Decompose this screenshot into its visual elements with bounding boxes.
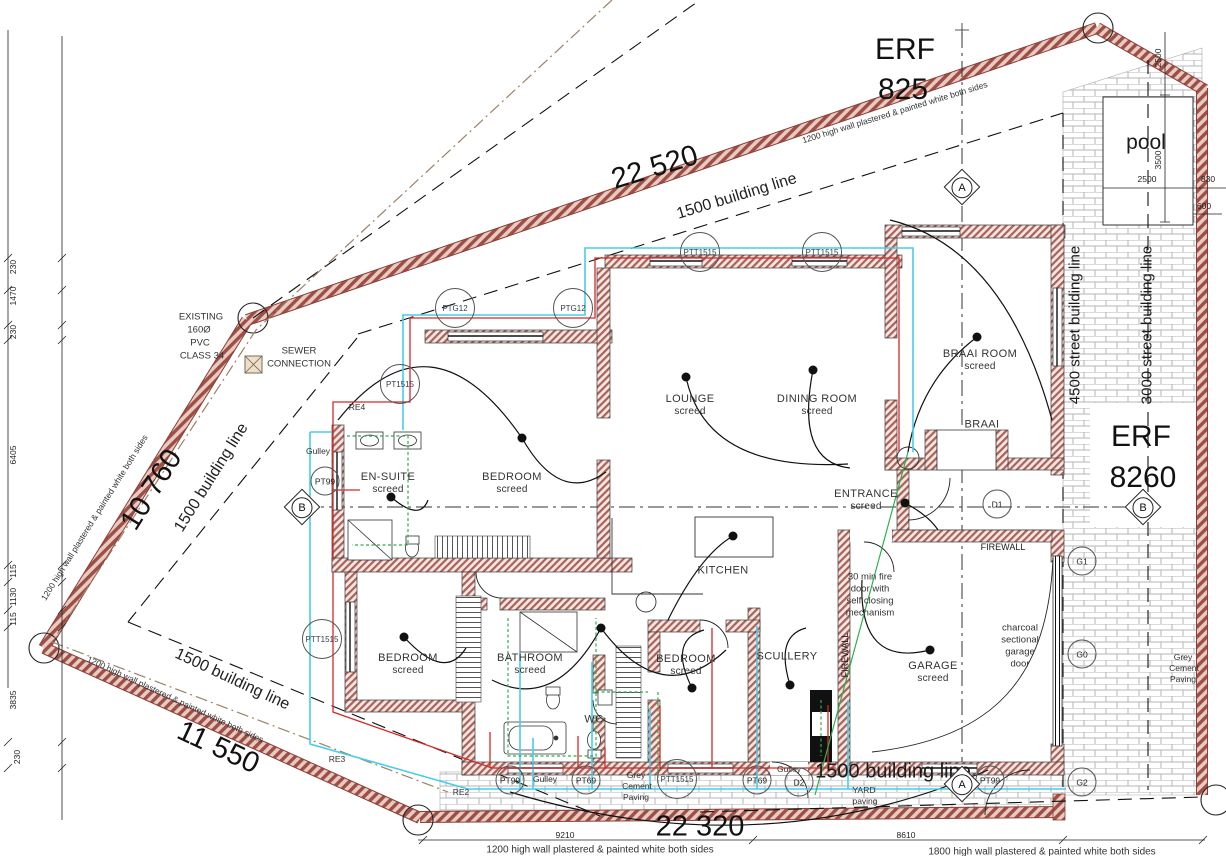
tag-g2: G2 bbox=[1068, 768, 1097, 797]
garage-door-note-3: garage bbox=[1005, 648, 1035, 659]
grey-paving-right-2: Cement bbox=[1169, 664, 1199, 674]
tag-ptt1515-top1: PTT1515 bbox=[680, 232, 720, 272]
tag-g1: G1 bbox=[1068, 547, 1097, 576]
grey-paving-bottom-1: Grey bbox=[627, 771, 645, 781]
chain-230b: 230 bbox=[9, 325, 19, 339]
erf-8260-line1: ERF bbox=[1111, 420, 1171, 455]
grey-paving-right-3: Paving bbox=[1170, 675, 1196, 685]
chain-230a: 230 bbox=[9, 260, 19, 274]
room-bedroom-2: BEDROOMscreed bbox=[656, 653, 716, 677]
garage-door-note-1: charcoal bbox=[1002, 624, 1038, 635]
fire-door-note-1: 30 min fire bbox=[848, 573, 892, 584]
erf-825-line1: ERF bbox=[875, 33, 935, 68]
pool-dim-height: 3500 bbox=[1154, 151, 1164, 170]
tag-ptg12-1: PTG12 bbox=[435, 288, 475, 328]
pool-dim-corner: 600 bbox=[1197, 202, 1211, 212]
yard-paving-2: paving bbox=[852, 797, 877, 807]
existing-pvc-1: EXISTING bbox=[179, 313, 223, 324]
garage-door-note-4: door bbox=[1010, 660, 1029, 671]
existing-pvc-3: PVC bbox=[190, 339, 210, 350]
yard-paving-1: YARD bbox=[853, 786, 876, 796]
site-plan: ERF 825 ERF 8260 pool 2500 3500 2500 830… bbox=[0, 0, 1226, 856]
room-ensuite: EN-SUITEscreed bbox=[361, 471, 416, 495]
pool-dim-width: 2500 bbox=[1138, 175, 1157, 185]
chain-230c: 230 bbox=[13, 750, 23, 764]
gulley-bottom: Gulley bbox=[533, 775, 557, 785]
room-kitchen: KITCHEN bbox=[697, 565, 748, 578]
tag-d2: D2 bbox=[785, 768, 814, 797]
tag-pt1515: PT1515 bbox=[380, 364, 420, 404]
chain-115a: 115 bbox=[9, 564, 19, 578]
tag-re4: RE4 bbox=[349, 403, 366, 413]
room-wc: WC bbox=[584, 714, 603, 727]
plumbing bbox=[310, 248, 1066, 795]
existing-pvc-2: 160Ø bbox=[187, 326, 210, 337]
tag-ptg12-2: PTG12 bbox=[553, 288, 593, 328]
room-garage: GARAGEscreed bbox=[908, 660, 957, 684]
tag-g0: G0 bbox=[1068, 640, 1097, 669]
dim-bottom-right: 8610 bbox=[897, 831, 916, 841]
dim-bottom-left: 9210 bbox=[556, 831, 575, 841]
existing-pvc-4: CLASS 34 bbox=[180, 352, 224, 363]
firewall-label-v: FIREWALL bbox=[840, 633, 850, 678]
pool-dim-top: 2500 bbox=[1154, 49, 1164, 68]
street-building-line-4500: 4500 street building line bbox=[1066, 246, 1083, 404]
tag-re3: RE3 bbox=[329, 755, 346, 765]
fire-door-note-2: door with bbox=[851, 585, 890, 596]
sewer-connection-box bbox=[245, 356, 262, 373]
tag-pt99-left: PT99 bbox=[311, 467, 340, 496]
dim-bottom-boundary: 22 320 bbox=[656, 810, 745, 843]
room-bedroom-3: BEDROOMscreed bbox=[378, 652, 438, 676]
tag-ptt1515-left: PTT1515 bbox=[302, 619, 342, 659]
sewer-connection-2: CONNECTION bbox=[267, 360, 331, 371]
room-scullery: SCULLERY bbox=[756, 651, 817, 664]
chain-115b: 115 bbox=[9, 612, 19, 626]
garage-door bbox=[1053, 556, 1062, 746]
chain-6405: 6405 bbox=[9, 446, 19, 465]
chain-3835: 3835 bbox=[9, 691, 19, 710]
braai-label: BRAAI bbox=[964, 419, 999, 432]
fire-door-note-3: self closing bbox=[847, 597, 894, 608]
firewall-label-h: FIREWALL bbox=[981, 542, 1026, 552]
tag-ptt1515-bottom: PTT1515 bbox=[657, 759, 697, 799]
room-lounge: LOUNGEscreed bbox=[666, 393, 715, 417]
braai-hearth bbox=[937, 430, 996, 470]
wall-note-bottom-1200: 1200 high wall plastered & painted white… bbox=[486, 844, 713, 856]
wall-note-bottom-1800: 1800 high wall plastered & painted white… bbox=[928, 846, 1155, 856]
chain-1130: 1130 bbox=[9, 588, 19, 606]
garage-door-note-2: sectional bbox=[1001, 636, 1039, 647]
room-entrance: ENTRANCEscreed bbox=[834, 488, 898, 512]
chain-1470: 1470 bbox=[9, 287, 19, 306]
sewer-connection-1: SEWER bbox=[282, 347, 317, 358]
tag-pt69-bottom1: PT69 bbox=[572, 766, 601, 795]
grey-paving-right-1: Grey bbox=[1174, 653, 1192, 663]
tag-ptt1515-top2: PTT1515 bbox=[802, 232, 842, 272]
grey-paving-bottom-3: Paving bbox=[623, 793, 649, 803]
room-bedroom-1: BEDROOMscreed bbox=[482, 471, 542, 495]
room-bathroom: BATHROOMscreed bbox=[497, 652, 563, 676]
room-dining: DINING ROOMscreed bbox=[777, 393, 857, 417]
street-building-line-3000: 3000 street building line bbox=[1138, 246, 1155, 404]
gulley-left: Gulley bbox=[306, 447, 330, 457]
room-braai: BRAAI ROOMscreed bbox=[943, 348, 1017, 372]
tag-pt99-right: PT99 bbox=[976, 766, 1005, 795]
pool-dim-right: 830 bbox=[1201, 175, 1215, 185]
tag-re2: RE2 bbox=[453, 788, 470, 798]
tag-pt69-bottom2: PT69 bbox=[743, 766, 772, 795]
fire-door-note-4: mechanism bbox=[846, 609, 895, 620]
grey-paving-bottom-2: Cement bbox=[622, 782, 652, 792]
tag-d1: D1 bbox=[983, 490, 1012, 519]
tag-pt99-bottom: PT99 bbox=[496, 766, 525, 795]
